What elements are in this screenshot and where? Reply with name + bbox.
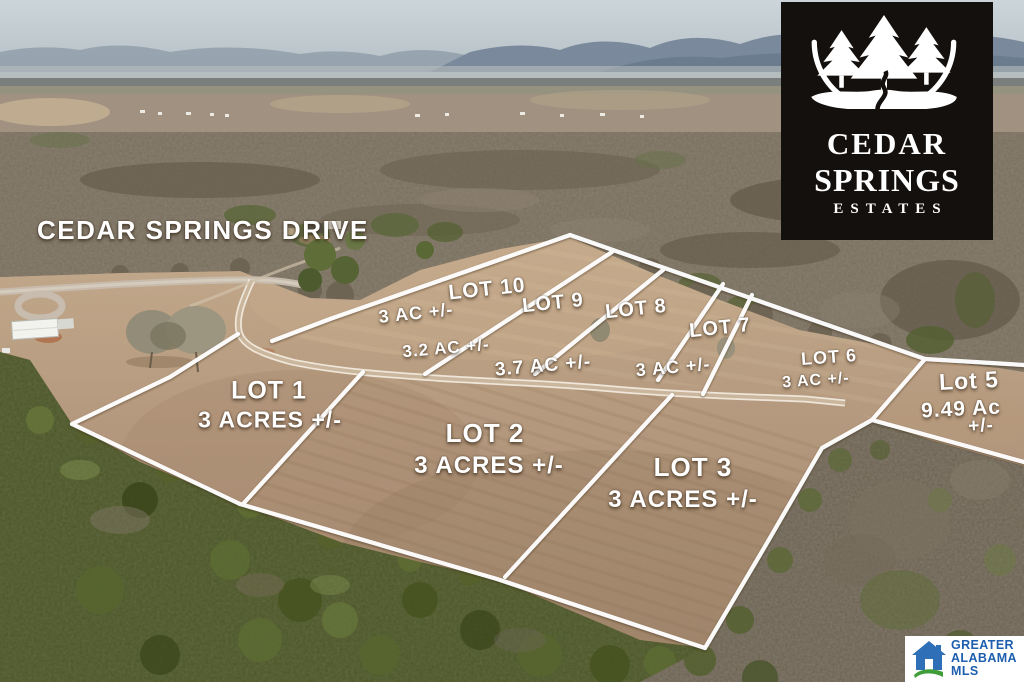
lot-1-acreage: 3 ACRES +/- [198, 409, 342, 432]
logo-title-line2: SPRINGS [781, 162, 993, 199]
mls-text-line3: MLS [951, 665, 1017, 678]
lot-1-label: LOT 1 [231, 379, 307, 404]
lot-3-acreage: 3 ACRES +/- [608, 488, 757, 512]
street-label: CEDAR SPRINGS DRIVE [37, 217, 369, 243]
lot-2-label: LOT 2 [446, 420, 525, 446]
logo-title-line3: ESTATES [781, 201, 993, 218]
logo-title-line1: CEDAR [781, 126, 993, 162]
cedar-springs-logo: CEDAR SPRINGS ESTATES [781, 2, 993, 240]
lot-2-acreage: 3 ACRES +/- [414, 454, 563, 478]
house-icon [909, 639, 949, 679]
lot-6-label: LOT 6 [800, 346, 857, 368]
lot-5-label: Lot 5 [938, 368, 999, 394]
lot-3-label: LOT 3 [654, 454, 733, 480]
mls-logo: GREATER ALABAMA MLS [905, 636, 1024, 682]
lot-5-acreage-suffix: +/- [968, 416, 995, 436]
pine-trees-icon [802, 12, 972, 112]
aerial-lot-map: CEDAR SPRINGS DRIVE LOT 1 3 ACRES +/- LO… [0, 0, 1024, 682]
